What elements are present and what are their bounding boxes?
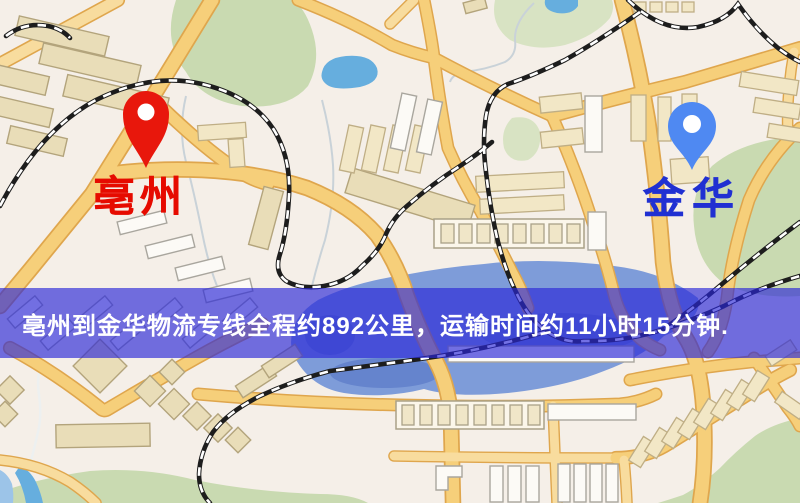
logistics-route-map: 亳州 金华 亳州到金华物流专线全程约892公里，运输时间约11小时15分钟.: [0, 0, 800, 503]
destination-city-label: 金华: [643, 178, 741, 220]
route-info-text: 亳州到金华物流专线全程约892公里，运输时间约11小时15分钟.: [0, 306, 729, 341]
origin-city-label: 亳州: [93, 176, 187, 218]
map-canvas: [0, 0, 800, 503]
route-info-banner: 亳州到金华物流专线全程约892公里，运输时间约11小时15分钟.: [0, 288, 800, 358]
